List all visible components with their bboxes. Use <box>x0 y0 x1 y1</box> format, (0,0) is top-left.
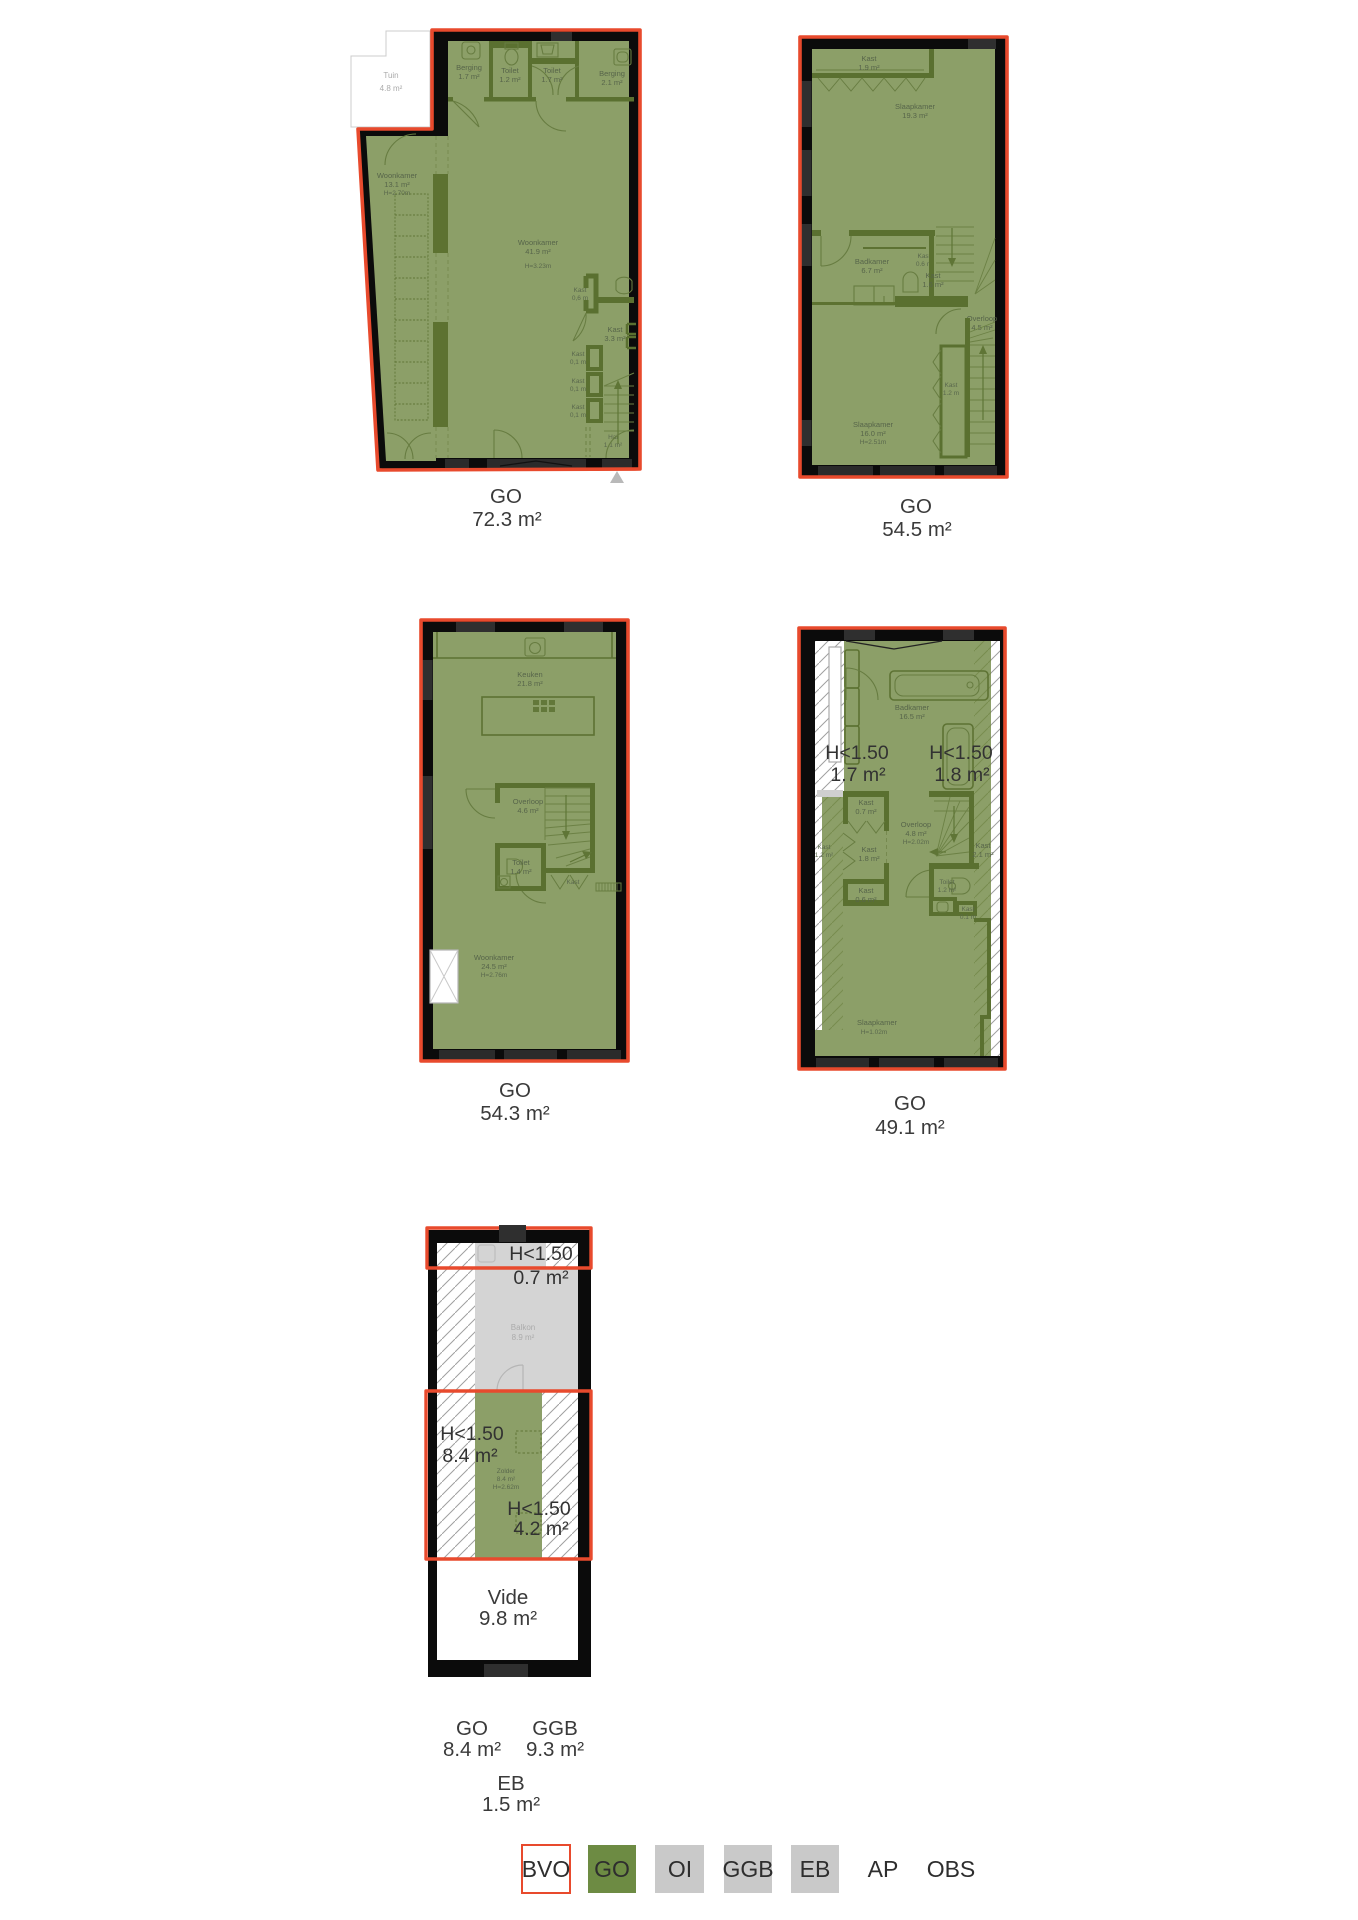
svg-text:Kast: Kast <box>944 382 957 389</box>
svg-text:Slaapkamer: Slaapkamer <box>895 102 936 111</box>
svg-text:Berging: Berging <box>456 63 482 72</box>
svg-text:0,1 m: 0,1 m <box>570 359 586 366</box>
svg-text:8.4 m²: 8.4 m² <box>442 1445 498 1467</box>
svg-text:Kast: Kast <box>961 906 974 913</box>
svg-text:H=3.23m: H=3.23m <box>525 263 552 270</box>
svg-text:BVO: BVO <box>522 1856 571 1882</box>
svg-text:2.1 m²: 2.1 m² <box>601 78 623 87</box>
svg-text:Overloop: Overloop <box>901 820 931 829</box>
svg-text:GO: GO <box>456 1717 488 1740</box>
svg-text:Kast: Kast <box>573 287 586 294</box>
svg-text:16.5 m²: 16.5 m² <box>899 712 925 721</box>
svg-text:H<1.50: H<1.50 <box>507 1498 571 1520</box>
svg-text:H<1.50: H<1.50 <box>929 742 993 764</box>
svg-text:1.2 m²: 1.2 m² <box>815 852 834 859</box>
svg-text:Kast: Kast <box>571 351 584 358</box>
svg-text:Badkamer: Badkamer <box>895 703 930 712</box>
svg-text:Woonkamer: Woonkamer <box>474 953 515 962</box>
svg-text:Berging: Berging <box>599 69 625 78</box>
svg-text:6.7 m²: 6.7 m² <box>861 266 883 275</box>
svg-text:Badkamer: Badkamer <box>855 257 890 266</box>
svg-text:1.2 m: 1.2 m <box>943 390 959 397</box>
svg-text:41.9 m²: 41.9 m² <box>525 247 551 256</box>
svg-text:0,1 m: 0,1 m <box>570 412 586 419</box>
svg-text:3.3 m²: 3.3 m² <box>604 334 626 343</box>
svg-text:1.7 m²: 1.7 m² <box>541 75 563 84</box>
svg-text:Kast: Kast <box>858 798 874 807</box>
svg-text:AP: AP <box>868 1856 899 1882</box>
svg-text:1,1 m²: 1,1 m² <box>604 442 623 449</box>
svg-text:Toilet: Toilet <box>939 879 954 886</box>
svg-text:Kast: Kast <box>817 844 830 851</box>
svg-text:0.1 m: 0.1 m <box>960 914 976 921</box>
svg-text:H<1.50: H<1.50 <box>440 1423 504 1445</box>
svg-text:1.8 m²: 1.8 m² <box>858 854 880 863</box>
svg-text:49.1 m²: 49.1 m² <box>875 1116 945 1139</box>
svg-text:Kast: Kast <box>975 841 991 850</box>
svg-text:1.2 m²: 1.2 m² <box>938 887 957 894</box>
svg-text:Kast: Kast <box>571 404 584 411</box>
svg-text:Woonkamer: Woonkamer <box>518 238 559 247</box>
svg-text:1.2 m²: 1.2 m² <box>499 75 521 84</box>
svg-text:4.8 m²: 4.8 m² <box>380 84 403 93</box>
svg-text:8.4 m²: 8.4 m² <box>497 1476 516 1483</box>
svg-text:8.4 m²: 8.4 m² <box>443 1738 501 1761</box>
svg-text:GGB: GGB <box>722 1856 773 1882</box>
svg-text:1.7 m²: 1.7 m² <box>458 72 480 81</box>
svg-text:1.4 m²: 1.4 m² <box>510 867 532 876</box>
svg-text:8.9 m²: 8.9 m² <box>512 1333 535 1342</box>
svg-text:0.7 m²: 0.7 m² <box>513 1267 569 1289</box>
svg-text:24.5 m²: 24.5 m² <box>481 962 507 971</box>
svg-text:2.1 m²: 2.1 m² <box>972 850 994 859</box>
svg-text:H=2.62m: H=2.62m <box>493 1484 520 1491</box>
svg-text:Kast: Kast <box>861 54 877 63</box>
svg-text:H=2.70m: H=2.70m <box>384 190 411 197</box>
svg-text:OI: OI <box>668 1856 692 1882</box>
svg-text:Kast: Kast <box>571 378 584 385</box>
svg-text:0,6 m: 0,6 m <box>572 295 588 302</box>
svg-text:Overloop: Overloop <box>513 797 543 806</box>
svg-text:4.6 m²: 4.6 m² <box>517 806 539 815</box>
svg-text:H=2.51m: H=2.51m <box>860 439 887 446</box>
svg-text:1.7 m²: 1.7 m² <box>830 764 886 786</box>
svg-text:H<1.50: H<1.50 <box>509 1243 573 1265</box>
svg-text:Balkon: Balkon <box>511 1323 535 1332</box>
svg-text:Slaapkamer: Slaapkamer <box>857 1018 898 1027</box>
svg-text:Kast: Kast <box>925 271 941 280</box>
svg-text:0.6 m²: 0.6 m² <box>855 895 877 904</box>
svg-text:EB: EB <box>800 1856 831 1882</box>
svg-text:Zolder: Zolder <box>497 1468 516 1475</box>
svg-text:21.8 m²: 21.8 m² <box>517 679 543 688</box>
svg-text:4.2 m²: 4.2 m² <box>513 1518 569 1540</box>
svg-text:Toilet: Toilet <box>512 858 530 867</box>
svg-text:Kast: Kast <box>858 886 874 895</box>
svg-text:9.8 m²: 9.8 m² <box>479 1607 537 1630</box>
svg-text:GO: GO <box>490 485 522 508</box>
svg-text:Vide: Vide <box>488 1586 529 1609</box>
svg-text:72.3 m²: 72.3 m² <box>472 508 542 531</box>
svg-text:0,1 m: 0,1 m <box>570 386 586 393</box>
svg-text:Toilet: Toilet <box>501 66 519 75</box>
svg-text:H=1.02m: H=1.02m <box>861 1029 888 1036</box>
svg-text:OBS: OBS <box>927 1856 976 1882</box>
svg-text:Kast: Kast <box>607 325 623 334</box>
svg-text:0.7 m²: 0.7 m² <box>855 807 877 816</box>
svg-text:54.5 m²: 54.5 m² <box>882 518 952 541</box>
svg-text:H=2.76m: H=2.76m <box>481 972 508 979</box>
svg-text:54.3 m²: 54.3 m² <box>480 1102 550 1125</box>
svg-text:16.0 m²: 16.0 m² <box>860 429 886 438</box>
svg-text:1.5 m²: 1.5 m² <box>482 1793 540 1816</box>
svg-text:Tuin: Tuin <box>383 71 398 80</box>
svg-text:H=2.02m: H=2.02m <box>903 839 930 846</box>
svg-text:Toilet: Toilet <box>543 66 561 75</box>
svg-text:Keuken: Keuken <box>517 670 542 679</box>
svg-text:1.6 m²: 1.6 m² <box>922 280 944 289</box>
svg-text:1.8 m²: 1.8 m² <box>934 764 990 786</box>
svg-text:EB: EB <box>497 1772 524 1795</box>
svg-text:Overloop: Overloop <box>967 314 997 323</box>
svg-text:19.3 m²: 19.3 m² <box>902 111 928 120</box>
svg-text:GO: GO <box>894 1092 926 1115</box>
svg-text:1.9 m²: 1.9 m² <box>858 63 880 72</box>
svg-text:GO: GO <box>499 1079 531 1102</box>
svg-text:Kast: Kast <box>917 253 930 260</box>
svg-text:GO: GO <box>594 1856 630 1882</box>
svg-text:Kast: Kast <box>566 879 579 886</box>
svg-text:GGB: GGB <box>532 1717 578 1740</box>
svg-text:Kast: Kast <box>861 845 877 854</box>
svg-text:Slaapkamer: Slaapkamer <box>853 420 894 429</box>
svg-text:GO: GO <box>900 495 932 518</box>
svg-text:13.1 m²: 13.1 m² <box>384 180 410 189</box>
svg-text:9.3 m²: 9.3 m² <box>526 1738 584 1761</box>
svg-text:H<1.50: H<1.50 <box>825 742 889 764</box>
svg-text:Woonkamer: Woonkamer <box>377 171 418 180</box>
svg-text:4.8 m²: 4.8 m² <box>905 829 927 838</box>
